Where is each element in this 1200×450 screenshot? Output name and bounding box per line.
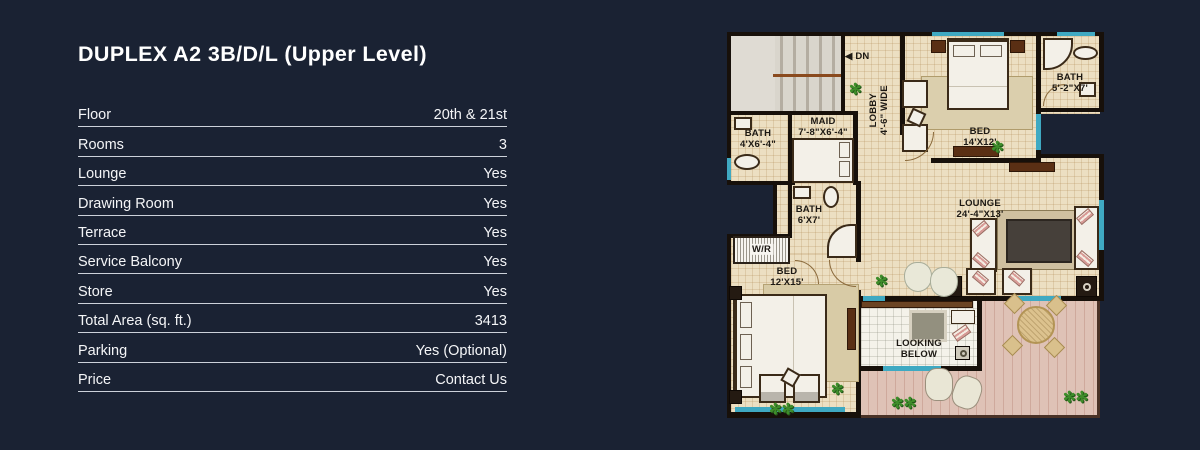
table-row: LoungeYes (78, 157, 507, 186)
spec-label: Total Area (sq. ft.) (78, 313, 192, 329)
window (932, 32, 1004, 36)
toilet-icon (734, 154, 760, 170)
patio-table (1017, 306, 1055, 344)
spec-value: Yes (483, 225, 507, 241)
page: DUPLEX A2 3B/D/L (Upper Level) Floor20th… (0, 0, 1200, 450)
spec-value: Yes (Optional) (416, 343, 507, 359)
window (1036, 114, 1041, 150)
table-row: Floor20th & 21st (78, 98, 507, 127)
spec-label: Terrace (78, 225, 126, 241)
void-topright (1040, 114, 1104, 158)
plant-icon: ✻✻ (769, 402, 794, 417)
table-row: PriceContact Us (78, 363, 507, 392)
stair-rail (773, 74, 841, 77)
bedpost (729, 390, 742, 404)
room-label-wr: W/R (750, 244, 773, 255)
spec-label: Service Balcony (78, 254, 182, 270)
spec-value: Yes (483, 254, 507, 270)
stair-landing (731, 36, 775, 111)
spec-value: Yes (483, 196, 507, 212)
bedroom-chair (902, 80, 928, 108)
nightstand (1010, 40, 1025, 53)
toilet-icon (1073, 46, 1098, 60)
spec-label: Store (78, 284, 113, 300)
table-row: StoreYes (78, 274, 507, 303)
wall (773, 185, 777, 234)
bed1-bed (947, 38, 1009, 110)
sink-icon (734, 117, 752, 130)
wall (1040, 108, 1104, 112)
floor-plan: ◀ DN ✻ LOBBY 4'-6" WIDE MAID 7'-8"X6'-4"… (727, 32, 1104, 418)
maid-bed (792, 138, 854, 183)
room-label-bed-master: BED 14'X12' (945, 126, 1015, 148)
door-panel (847, 308, 856, 350)
shelf (861, 301, 973, 308)
spec-value: Contact Us (435, 372, 507, 388)
spec-label: Price (78, 372, 111, 388)
spec-label: Floor (78, 107, 111, 123)
wall (727, 32, 1104, 36)
lounge-chair (925, 368, 953, 401)
spec-value: 3 (499, 137, 507, 153)
plant-icon: ✻✻ (891, 396, 916, 411)
console-table (1009, 162, 1055, 172)
sink-icon (793, 186, 811, 199)
window (727, 158, 731, 180)
window (1057, 32, 1095, 36)
plant-icon: ✻ (875, 274, 888, 289)
wall (841, 36, 845, 111)
plant-icon: ✻ (831, 382, 844, 397)
tub-chair (930, 267, 958, 297)
wall (1040, 154, 1104, 158)
bedpost (729, 286, 742, 300)
spec-label: Rooms (78, 137, 124, 153)
spec-value: 3413 (475, 313, 507, 329)
plant-icon: ✻✻ (1063, 390, 1088, 405)
side-table (1076, 276, 1097, 297)
sofa (951, 310, 975, 324)
plant-icon: ✻ (849, 82, 862, 97)
room-label-maid: MAID 7'-8"X6'-4" (790, 116, 856, 138)
wall (1099, 32, 1104, 112)
page-title: DUPLEX A2 3B/D/L (Upper Level) (78, 42, 427, 67)
spec-table: Floor20th & 21st Rooms3 LoungeYes Drawin… (78, 98, 507, 392)
table-row: TerraceYes (78, 216, 507, 245)
dn-label: DN (855, 51, 869, 62)
table-row: Service BalconyYes (78, 245, 507, 274)
tub-chair (904, 262, 932, 292)
room-label-bath-mid: BATH 6'X7' (783, 204, 835, 226)
void-left (731, 185, 773, 234)
room-label-lounge: LOUNGE 24'-4"X13' (940, 198, 1020, 220)
spec-label: Drawing Room (78, 196, 174, 212)
table-row: Drawing RoomYes (78, 186, 507, 215)
spec-value: Yes (483, 284, 507, 300)
spec-value: Yes (483, 166, 507, 182)
wall (727, 111, 853, 115)
window (1099, 200, 1104, 250)
room-label-looking-below: LOOKING BELOW (873, 338, 965, 360)
wall (977, 296, 982, 371)
room-label-bed-second: BED 12'X15' (755, 266, 819, 288)
room-label-bath-master: BATH 5'-2"X7' (1041, 72, 1099, 94)
room-label-lobby: LOBBY 4'-6" WIDE (868, 65, 890, 155)
table-row: ParkingYes (Optional) (78, 333, 507, 362)
spec-label: Lounge (78, 166, 126, 182)
room-label-bath-maid: BATH 4'X6'-4" (729, 128, 787, 150)
stairs-down-arrow: ◀ DN (845, 51, 869, 62)
table-row: Total Area (sq. ft.)3413 (78, 304, 507, 333)
spec-label: Parking (78, 343, 127, 359)
wardrobe: W/R (733, 236, 790, 264)
spec-value: 20th & 21st (434, 107, 507, 123)
nightstand (931, 40, 946, 53)
wall (727, 181, 795, 185)
table-row: Rooms3 (78, 127, 507, 156)
